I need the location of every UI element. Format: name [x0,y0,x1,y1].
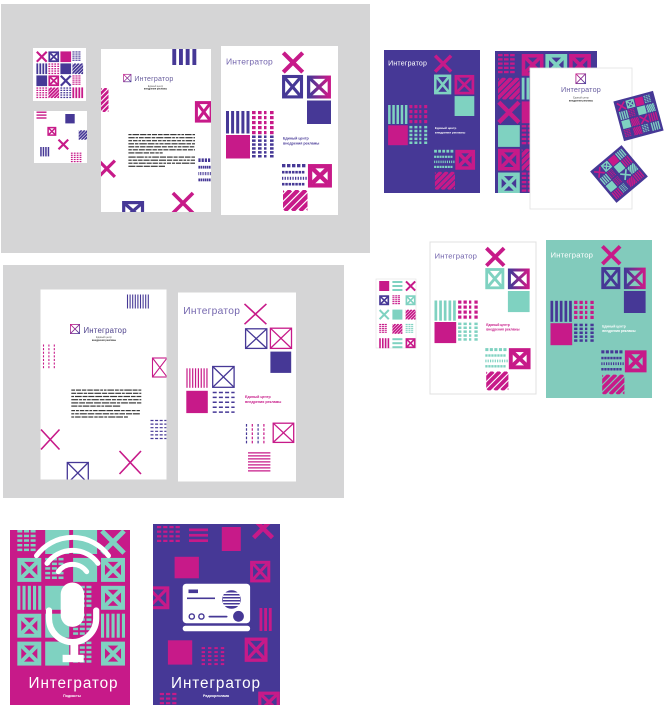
svg-text:Интегратор: Интегратор [561,85,601,94]
svg-text:Интегратор: Интегратор [171,675,261,692]
svg-text:внедрения рекламы: внедрения рекламы [569,100,593,103]
svg-text:Единый центр: Единый центр [602,324,626,328]
svg-text:внедрения рекламы: внедрения рекламы [92,339,116,342]
svg-text:Интегратор: Интегратор [435,252,478,261]
svg-text:Интегратор: Интегратор [134,76,173,83]
svg-text:внедрения рекламы: внедрения рекламы [144,89,167,91]
svg-text:внедрения рекламы: внедрения рекламы [283,142,319,146]
svg-text:Интегратор: Интегратор [84,326,128,335]
svg-text:внедрения рекламы: внедрения рекламы [602,329,636,333]
svg-text:Интегратор: Интегратор [183,306,240,317]
svg-text:Радиореклама: Радиореклама [203,694,230,698]
svg-text:Единый центр: Единый центр [148,85,164,88]
svg-text:Интегратор: Интегратор [388,61,427,68]
svg-text:Единый центр: Единый центр [245,395,271,399]
svg-text:Единый центр: Единый центр [283,137,309,141]
svg-text:внедрения рекламы: внедрения рекламы [486,328,520,332]
svg-text:Интегратор: Интегратор [551,250,594,259]
svg-text:Единый центр: Единый центр [486,323,510,327]
svg-text:Подкасты: Подкасты [63,694,81,698]
svg-text:внедрения рекламы: внедрения рекламы [245,400,281,404]
svg-text:внедрения рекламы: внедрения рекламы [435,130,466,134]
svg-text:Интегратор: Интегратор [29,675,119,692]
svg-text:Интегратор: Интегратор [226,57,273,67]
